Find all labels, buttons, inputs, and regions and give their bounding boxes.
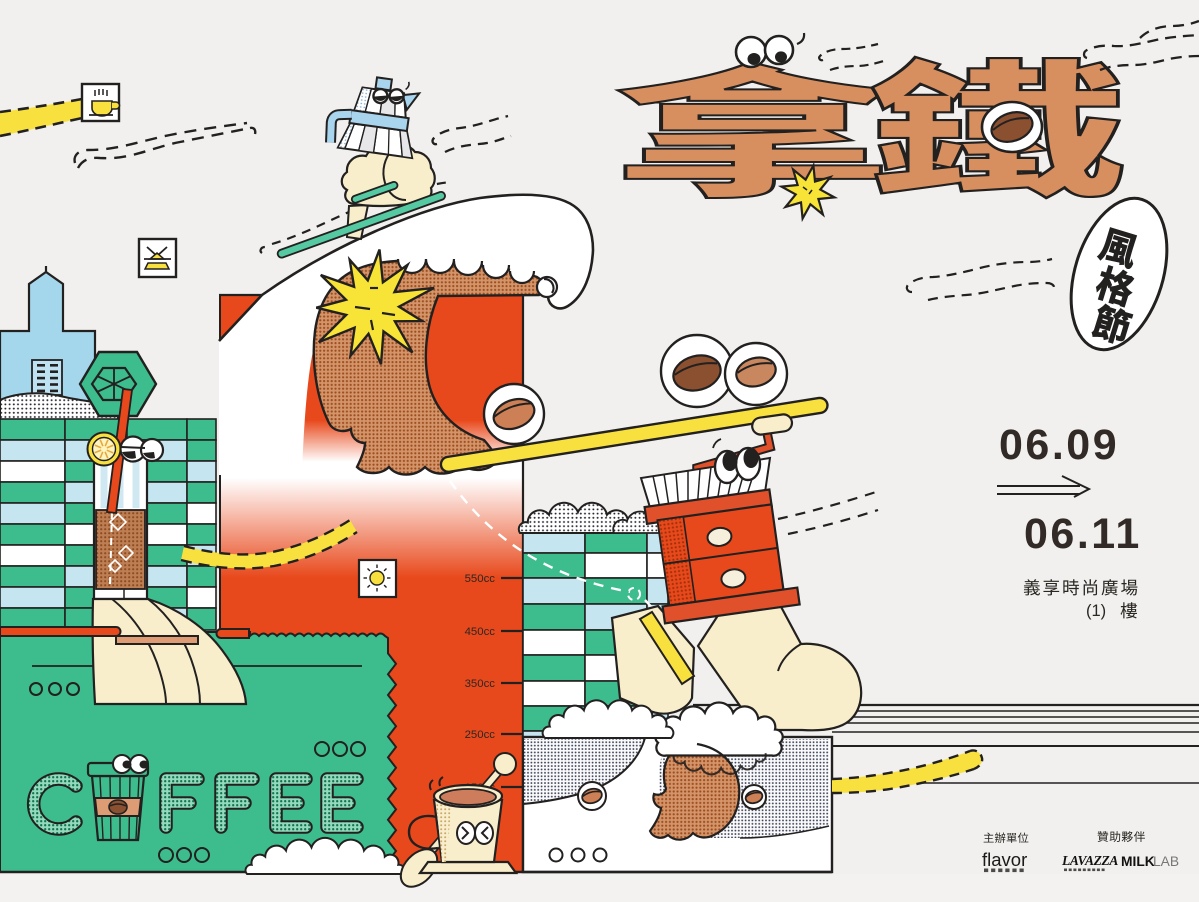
svg-text:06.09: 06.09: [999, 421, 1119, 469]
svg-text:flavor: flavor: [982, 849, 1027, 870]
svg-text:(1): (1): [1086, 602, 1106, 620]
svg-text:LAB: LAB: [1153, 854, 1179, 869]
svg-text:350cc: 350cc: [465, 678, 496, 690]
svg-text:550cc: 550cc: [465, 573, 496, 585]
svg-text:MILK: MILK: [1121, 854, 1155, 869]
svg-text:450cc: 450cc: [465, 626, 496, 638]
svg-text:250cc: 250cc: [465, 729, 496, 741]
svg-text:06.11: 06.11: [1024, 510, 1142, 558]
svg-text:LAVAZZA: LAVAZZA: [1061, 853, 1118, 868]
